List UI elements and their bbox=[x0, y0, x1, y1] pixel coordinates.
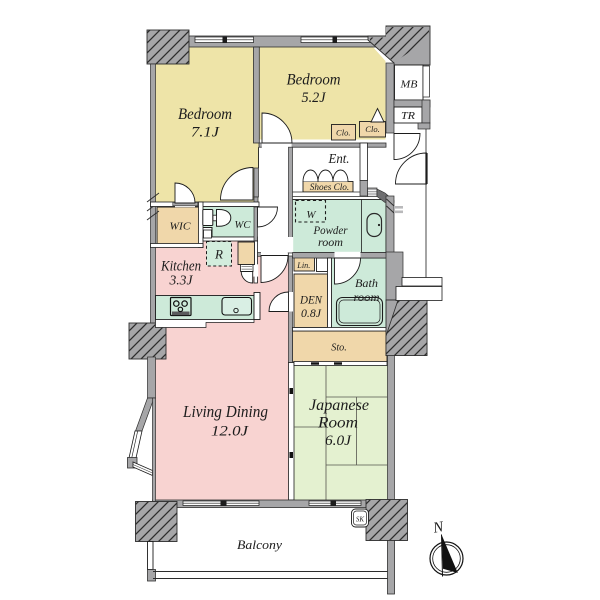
svg-text:0.8J: 0.8J bbox=[301, 308, 322, 320]
svg-text:3.3J: 3.3J bbox=[168, 273, 193, 288]
svg-text:MB: MB bbox=[399, 80, 418, 91]
svg-text:Lin.: Lin. bbox=[296, 261, 310, 270]
svg-text:SK: SK bbox=[356, 516, 365, 524]
svg-text:12.0J: 12.0J bbox=[211, 424, 249, 440]
svg-text:W: W bbox=[306, 209, 316, 221]
svg-text:Clo.: Clo. bbox=[365, 124, 380, 134]
svg-text:6.0J: 6.0J bbox=[325, 433, 352, 449]
svg-text:WC: WC bbox=[235, 220, 252, 231]
svg-text:Living Dining: Living Dining bbox=[182, 402, 268, 421]
svg-text:Shoes Clo.: Shoes Clo. bbox=[310, 182, 350, 192]
svg-text:Sto.: Sto. bbox=[331, 342, 347, 354]
svg-text:Powder: Powder bbox=[313, 225, 348, 237]
svg-text:WIC: WIC bbox=[170, 222, 191, 233]
svg-text:R: R bbox=[214, 247, 223, 262]
svg-text:Bedroom: Bedroom bbox=[178, 106, 232, 123]
svg-text:TR: TR bbox=[401, 111, 416, 122]
svg-text:5.2J: 5.2J bbox=[302, 90, 327, 106]
svg-text:Balcony: Balcony bbox=[237, 537, 282, 552]
svg-text:Japanese: Japanese bbox=[309, 397, 369, 414]
svg-text:Room: Room bbox=[317, 415, 358, 432]
svg-text:room: room bbox=[354, 290, 380, 304]
svg-text:Clo.: Clo. bbox=[336, 128, 351, 138]
svg-text:Ent.: Ent. bbox=[328, 151, 350, 166]
svg-text:7.1J: 7.1J bbox=[191, 125, 220, 141]
svg-text:room: room bbox=[318, 237, 343, 249]
svg-text:Bath: Bath bbox=[355, 276, 378, 290]
svg-text:Bedroom: Bedroom bbox=[287, 72, 341, 89]
svg-text:DEN: DEN bbox=[299, 295, 323, 307]
